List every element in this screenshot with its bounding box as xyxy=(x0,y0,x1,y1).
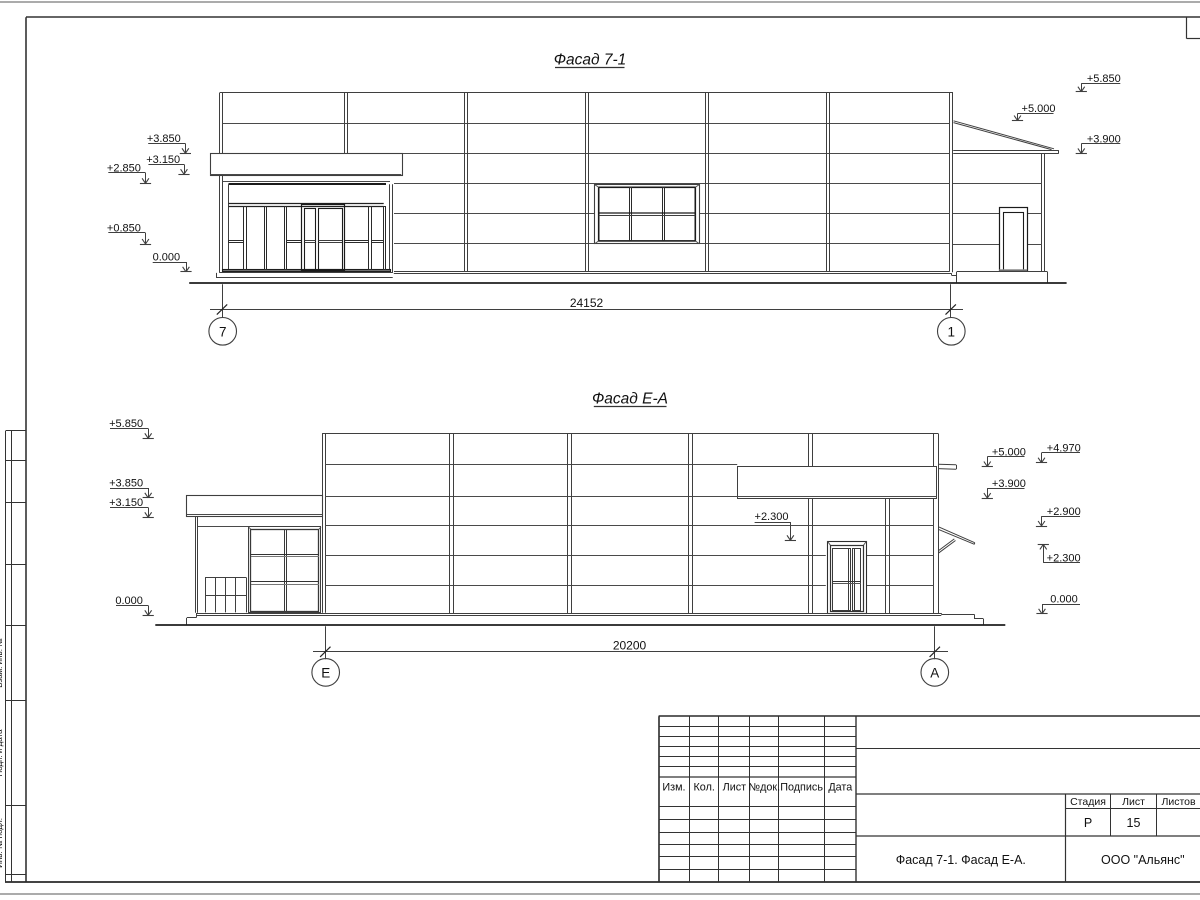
svg-text:Фасад 7-1: Фасад 7-1 xyxy=(554,52,627,69)
svg-text:Подп. и дата: Подп. и дата xyxy=(0,729,4,777)
svg-text:Подпись: Подпись xyxy=(780,781,823,793)
svg-text:+3.850: +3.850 xyxy=(109,478,143,490)
svg-text:Лист: Лист xyxy=(723,781,747,793)
svg-text:1: 1 xyxy=(948,324,956,339)
svg-text:0.000: 0.000 xyxy=(153,252,181,264)
svg-text:Инв. № подл.: Инв. № подл. xyxy=(0,818,4,868)
svg-text:Р: Р xyxy=(1084,816,1092,830)
svg-text:7: 7 xyxy=(219,324,227,339)
svg-text:Изм.: Изм. xyxy=(662,781,685,793)
svg-text:Фасад 7-1. Фасад Е-А.: Фасад 7-1. Фасад Е-А. xyxy=(896,853,1026,867)
svg-text:Е: Е xyxy=(321,665,330,680)
svg-text:Взам. инв. №: Взам. инв. № xyxy=(0,638,4,688)
svg-text:+2.300: +2.300 xyxy=(1047,552,1081,564)
svg-text:0.000: 0.000 xyxy=(1050,594,1078,606)
svg-text:№док.: №док. xyxy=(748,781,780,793)
svg-text:ООО "Альянс": ООО "Альянс" xyxy=(1101,853,1185,867)
svg-text:24152: 24152 xyxy=(570,296,604,310)
svg-text:Лист: Лист xyxy=(1122,796,1145,808)
svg-text:А: А xyxy=(930,665,939,680)
svg-text:Стадия: Стадия xyxy=(1070,796,1106,808)
svg-text:Листов: Листов xyxy=(1161,796,1196,808)
svg-text:20200: 20200 xyxy=(613,638,647,652)
svg-text:Дата: Дата xyxy=(828,781,852,793)
svg-text:Кол.: Кол. xyxy=(694,781,715,793)
svg-text:Фасад Е-А: Фасад Е-А xyxy=(592,391,668,408)
svg-text:15: 15 xyxy=(1127,816,1141,830)
svg-text:+2.300: +2.300 xyxy=(755,511,789,523)
